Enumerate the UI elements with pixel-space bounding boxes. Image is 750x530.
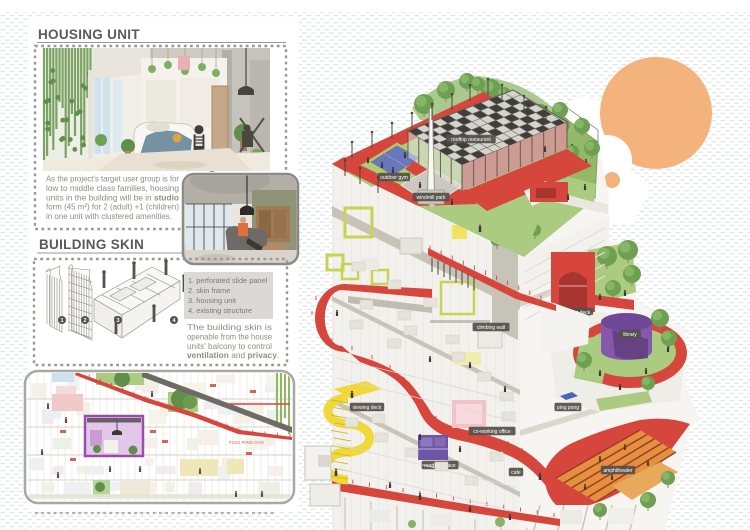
svg-text:viewing deck: viewing deck (353, 405, 382, 411)
svg-text:3. housing unit: 3. housing unit (188, 296, 236, 305)
svg-text:2: 2 (83, 318, 86, 324)
svg-text:cafe: cafe (511, 470, 521, 476)
svg-text:windmill park: windmill park (417, 195, 446, 201)
svg-text:rooftop restaurant: rooftop restaurant (451, 137, 491, 143)
svg-text:in one unit with clustered ame: in one unit with clustered amenities. (46, 211, 172, 221)
svg-text:HOUSING UNIT: HOUSING UNIT (38, 27, 140, 42)
svg-text:3: 3 (116, 318, 119, 324)
svg-text:ping pong: ping pong (557, 405, 579, 411)
svg-text:ventilation and privacy.: ventilation and privacy. (187, 350, 279, 360)
svg-text:2. skin frame: 2. skin frame (188, 286, 230, 295)
svg-text:4. existing structure: 4. existing structure (188, 306, 252, 315)
svg-text:1: 1 (60, 318, 63, 324)
svg-text:amphitheater: amphitheater (603, 468, 633, 474)
svg-text:outdoor gym: outdoor gym (380, 175, 408, 181)
svg-text:library: library (623, 332, 637, 338)
svg-text:P1NG P0NG GYM: P1NG P0NG GYM (229, 440, 264, 445)
svg-text:1. perforated slide panel: 1. perforated slide panel (188, 276, 268, 285)
svg-text:climbing wall: climbing wall (477, 325, 505, 331)
svg-text:co-working office: co-working office (473, 429, 511, 435)
svg-text:BUILDING SKIN: BUILDING SKIN (39, 237, 144, 252)
